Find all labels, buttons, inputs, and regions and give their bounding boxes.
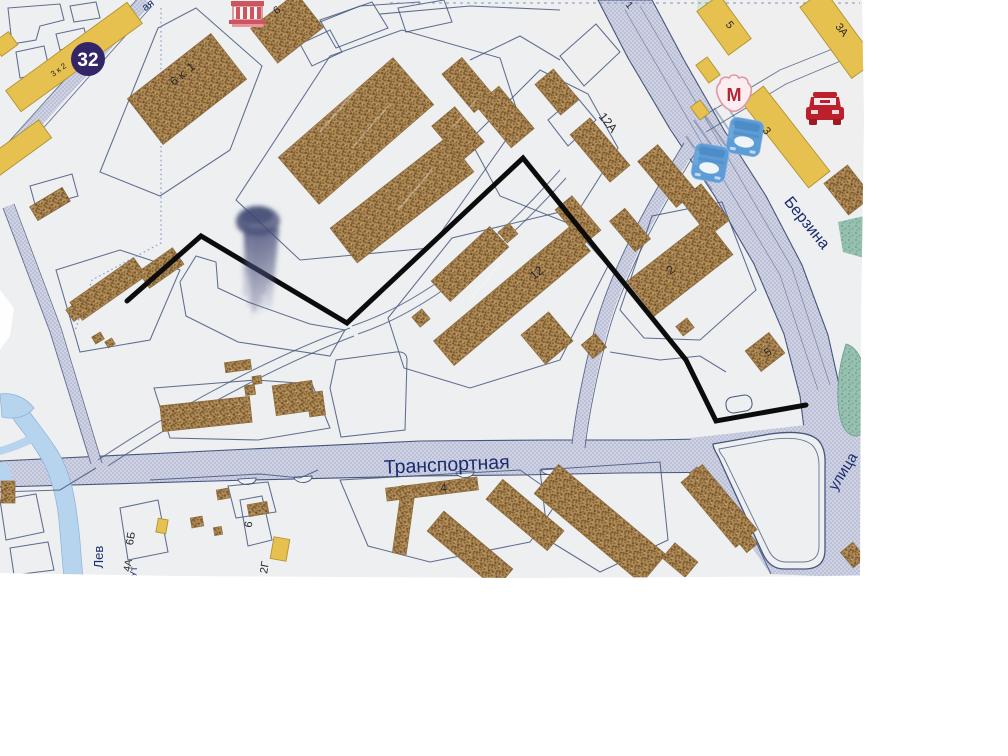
svg-text:2Г: 2Г [258, 560, 272, 574]
svg-text:М: М [727, 85, 742, 105]
svg-text:6Б: 6Б [124, 531, 138, 546]
svg-text:32: 32 [77, 50, 98, 71]
svg-text:Лев: Лев [91, 546, 106, 569]
